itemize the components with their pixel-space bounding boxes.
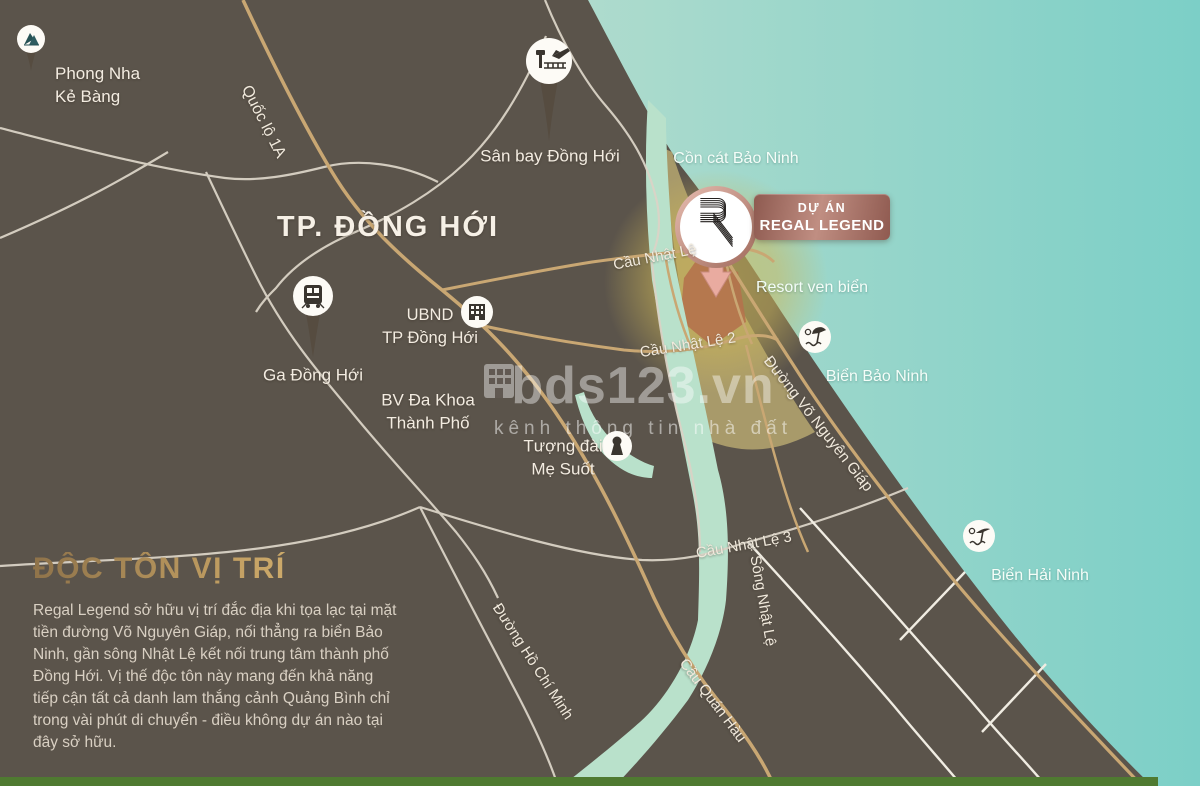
label-phong-nha-line2: Kẻ Bàng [55, 85, 140, 108]
label-tuong-dai-me-suot: Tượng đài Mẹ Suốt [523, 435, 602, 482]
label-tuong-dai-line2: Mẹ Suốt [523, 458, 602, 481]
label-ubnd-tp-dong-hoi: UBND TP Đồng Hới [382, 304, 478, 350]
project-name: REGAL LEGEND [760, 217, 885, 234]
label-phong-nha-ke-bang: Phong Nha Kẻ Bàng [55, 62, 140, 109]
label-bv-da-khoa: BV Đa Khoa Thành Phố [381, 389, 475, 436]
info-heading: ĐỘC TÔN VỊ TRÍ [33, 552, 405, 586]
label-bv-line2: Thành Phố [381, 412, 475, 435]
label-ubnd-line1: UBND [382, 304, 478, 327]
me-suot-statue-pin [602, 431, 632, 461]
label-bien-hai-ninh: Biển Hải Ninh [991, 565, 1089, 587]
label-bv-line1: BV Đa Khoa [381, 389, 475, 412]
location-map: Phong Nha Kẻ Bàng Quốc lộ 1A Sân bay Đồn… [0, 0, 1200, 786]
bao-ninh-beach-pin [799, 321, 831, 353]
label-ubnd-line2: TP Đồng Hới [382, 327, 478, 350]
info-block: ĐỘC TÔN VỊ TRÍ Regal Legend sở hữu vị tr… [33, 552, 405, 754]
project-label-plate: DỰ ÁN REGAL LEGEND [754, 194, 890, 240]
label-ga-dong-hoi: Ga Đồng Hới [263, 363, 363, 386]
label-phong-nha-line1: Phong Nha [55, 62, 140, 85]
hai-ninh-beach-pin [963, 520, 995, 552]
bottom-green-strip [0, 777, 1158, 786]
label-tuong-dai-line1: Tượng đài [523, 435, 602, 458]
label-con-cat-bao-ninh: Cồn cát Bảo Ninh [673, 148, 798, 170]
info-body: Regal Legend sở hữu vị trí đắc địa khi t… [33, 600, 399, 754]
label-tp-dong-hoi: TP. ĐỒNG HỚI [277, 207, 499, 247]
label-san-bay-dong-hoi: Sân bay Đồng Hới [480, 144, 620, 167]
label-bien-bao-ninh: Biển Bảo Ninh [826, 366, 928, 388]
project-tag: DỰ ÁN [798, 201, 846, 215]
label-resort-ven-bien: Resort ven biển [756, 277, 868, 299]
